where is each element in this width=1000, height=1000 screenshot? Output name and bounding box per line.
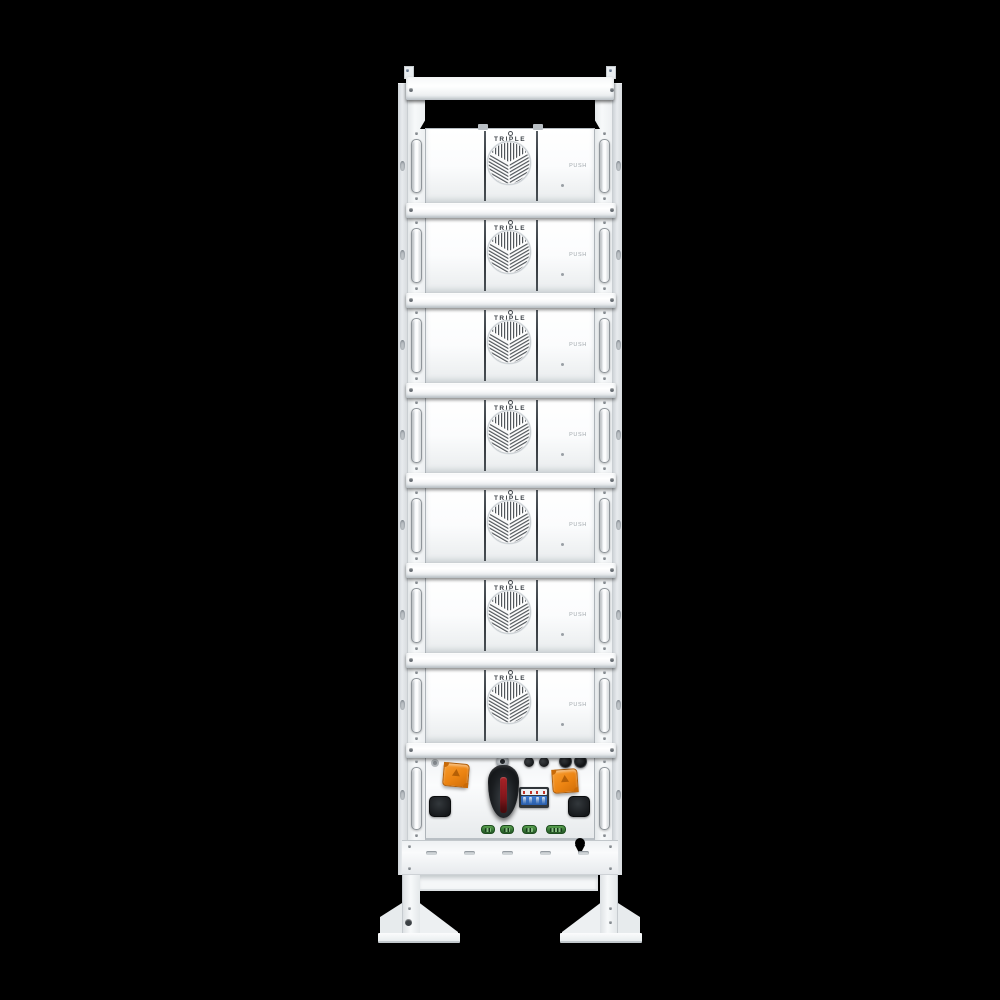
handle-screw — [415, 401, 418, 404]
fan-grille-icon — [486, 499, 532, 545]
module-handle — [411, 408, 422, 463]
foot-plate-left — [378, 933, 460, 943]
handle-screw — [415, 760, 418, 763]
module-indicator-dot — [561, 273, 564, 276]
bar-screw — [409, 748, 413, 752]
vent-slot — [502, 851, 513, 855]
circuit-breaker — [519, 787, 549, 808]
leg-bolt — [405, 919, 412, 926]
module-handle — [411, 318, 422, 373]
handle-screw — [603, 197, 606, 200]
handle-screw — [603, 401, 606, 404]
small-knob-left — [524, 757, 534, 767]
handle-screw — [415, 671, 418, 674]
top-screw-right — [609, 69, 612, 72]
comm-port-left — [429, 796, 451, 817]
battery-module: TRIPLE POWER PUSH — [425, 398, 595, 473]
bar-screw — [610, 568, 614, 572]
rail-hole — [400, 790, 405, 800]
handle-screw — [415, 287, 418, 290]
fan-grille-icon — [486, 679, 532, 725]
push-button-label: PUSH — [558, 612, 598, 618]
battery-module: TRIPLE POWER PUSH — [425, 668, 595, 743]
battery-rack: TRIPLE POWER PUSH TRIPLE POWER PUSH — [0, 0, 1000, 1000]
bar-screw — [610, 658, 614, 662]
bar-screw — [409, 298, 413, 302]
vent-slot — [540, 851, 551, 855]
handle-screw — [415, 221, 418, 224]
fan-grille-icon — [486, 589, 532, 635]
handle-screw — [603, 311, 606, 314]
product-image-canvas: TRIPLE POWER PUSH TRIPLE POWER PUSH — [0, 0, 1000, 1000]
handle-screw — [415, 557, 418, 560]
base-screw — [408, 845, 411, 848]
base-recessed-band — [418, 875, 598, 891]
leg-screw — [609, 921, 612, 924]
leg-screw — [609, 907, 612, 910]
vent-slot — [426, 851, 437, 855]
green-terminal-3 — [522, 825, 537, 834]
battery-module: TRIPLE POWER PUSH — [425, 308, 595, 383]
module-handle — [411, 678, 422, 733]
bar-screw — [610, 478, 614, 482]
module-indicator-dot — [561, 363, 564, 366]
rail-hole — [616, 700, 621, 710]
module-handle — [599, 588, 610, 643]
green-terminal-1 — [481, 825, 495, 834]
handle-screw — [603, 491, 606, 494]
bar-screw — [610, 298, 614, 302]
rail-hole — [400, 250, 405, 260]
foot-plate-right — [560, 933, 642, 943]
handle-screw — [603, 467, 606, 470]
push-button-label: PUSH — [558, 522, 598, 528]
push-button-label: PUSH — [558, 702, 598, 708]
bar-screw — [409, 388, 413, 392]
rail-hole — [616, 520, 621, 530]
handle-screw — [415, 132, 418, 135]
bar-screw — [610, 388, 614, 392]
shelf-bar — [406, 653, 616, 668]
module-handle — [599, 678, 610, 733]
battery-module: TRIPLE POWER PUSH — [425, 578, 595, 653]
fan-grille-icon — [486, 409, 532, 455]
module-handle — [411, 767, 422, 830]
bar-screw — [610, 208, 614, 212]
base-screw — [408, 867, 411, 870]
module-handle — [599, 498, 610, 553]
shelf-bar — [406, 563, 616, 578]
handle-screw — [415, 311, 418, 314]
handle-screw — [603, 132, 606, 135]
rail-hole — [400, 610, 405, 620]
module-handle — [411, 139, 422, 193]
rail-hole — [616, 250, 621, 260]
battery-module: TRIPLE POWER PUSH — [425, 488, 595, 563]
green-terminal-2 — [500, 825, 514, 834]
base-screw — [609, 867, 612, 870]
handle-screw — [603, 287, 606, 290]
handle-screw — [415, 491, 418, 494]
rail-hole — [400, 520, 405, 530]
battery-module: TRIPLE POWER PUSH — [425, 218, 595, 293]
rail-hole — [616, 430, 621, 440]
module-indicator-dot — [561, 453, 564, 456]
module-handle — [599, 318, 610, 373]
rotary-switch-red-stripe — [500, 777, 507, 813]
shelf-bar — [406, 203, 616, 218]
breaker-indicator-row — [521, 789, 547, 795]
push-button-label: PUSH — [558, 163, 598, 169]
push-button-label: PUSH — [558, 432, 598, 438]
rail-hole — [400, 161, 405, 171]
breaker-toggle-row — [521, 796, 547, 805]
module-handle — [599, 408, 610, 463]
rail-hole — [616, 340, 621, 350]
rail-hole — [400, 340, 405, 350]
module-handle — [599, 767, 610, 830]
warning-triangle-icon — [561, 775, 569, 783]
bar-screw — [409, 478, 413, 482]
handle-screw — [603, 377, 606, 380]
shelf-bar — [406, 743, 616, 758]
top-screw-left — [406, 69, 409, 72]
shelf-bar — [406, 383, 616, 398]
push-button-label: PUSH — [558, 342, 598, 348]
module-handle — [411, 228, 422, 283]
fan-grille-icon — [486, 140, 532, 186]
handle-screw — [415, 581, 418, 584]
bar-screw — [409, 568, 413, 572]
battery-module: TRIPLE POWER PUSH — [425, 129, 595, 203]
module-handle — [411, 588, 422, 643]
warning-triangle-icon — [452, 769, 461, 777]
bar-screw — [610, 748, 614, 752]
handle-screw — [603, 647, 606, 650]
bar-screw — [409, 88, 413, 92]
handle-screw — [415, 647, 418, 650]
module-handle — [599, 228, 610, 283]
base-panel — [402, 840, 618, 875]
handle-screw — [415, 737, 418, 740]
module-clip-tab — [533, 124, 543, 130]
handle-screw — [415, 377, 418, 380]
handle-screw — [603, 581, 606, 584]
orange-connector-right — [551, 768, 579, 794]
leg-screw — [408, 907, 411, 910]
vent-slot — [464, 851, 475, 855]
stand-leg-left — [402, 875, 420, 940]
module-handle — [411, 498, 422, 553]
rail-hole — [400, 430, 405, 440]
small-knob-right — [539, 757, 549, 767]
shelf-bar — [406, 473, 616, 488]
orange-connector-left — [442, 762, 470, 788]
mount-ring-screw — [431, 759, 439, 767]
push-button-label: PUSH — [558, 252, 598, 258]
handle-screw — [603, 760, 606, 763]
module-clip-tab — [478, 124, 488, 130]
bar-screw — [409, 208, 413, 212]
green-terminal-4 — [546, 825, 566, 834]
handle-screw — [415, 467, 418, 470]
handle-screw — [415, 197, 418, 200]
bar-screw — [610, 88, 614, 92]
handle-screw — [415, 834, 418, 837]
shelf-bar — [406, 293, 616, 308]
base-screw — [609, 845, 612, 848]
module-handle — [599, 139, 610, 193]
handle-screw — [603, 671, 606, 674]
top-frame-bar — [406, 77, 614, 100]
fan-grille-icon — [486, 229, 532, 275]
rail-hole — [400, 700, 405, 710]
module-indicator-dot — [561, 543, 564, 546]
handle-screw — [603, 834, 606, 837]
fan-grille-icon — [486, 319, 532, 365]
handle-screw — [603, 221, 606, 224]
handle-screw — [603, 557, 606, 560]
module-indicator-dot — [561, 633, 564, 636]
module-indicator-dot — [561, 184, 564, 187]
rail-hole — [616, 610, 621, 620]
rack-top-opening — [415, 100, 605, 129]
handle-screw — [603, 737, 606, 740]
comm-port-right — [568, 796, 590, 817]
bar-screw — [409, 658, 413, 662]
rail-hole — [616, 161, 621, 171]
module-indicator-dot — [561, 723, 564, 726]
vent-slot — [578, 851, 589, 855]
rail-hole — [616, 790, 621, 800]
